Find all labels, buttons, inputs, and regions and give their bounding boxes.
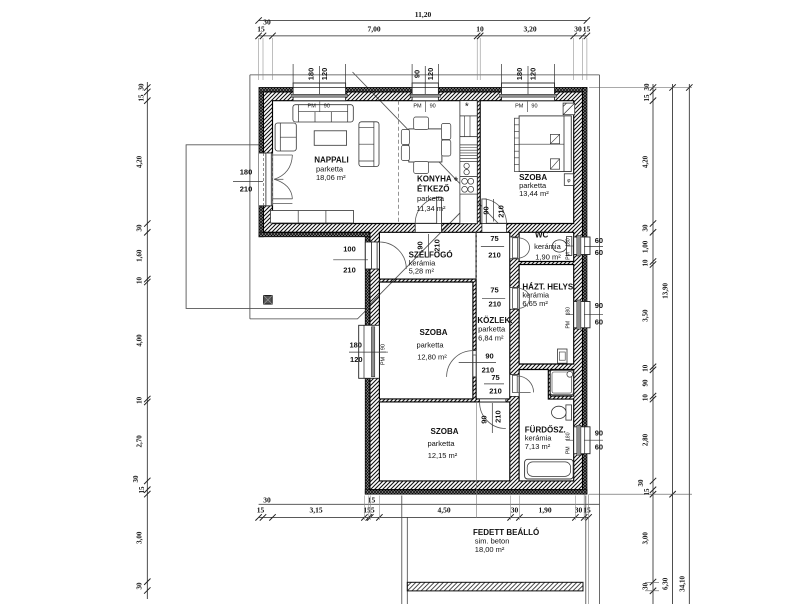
svg-text:kerámia: kerámia [534,242,562,251]
svg-text:90: 90 [412,70,421,78]
svg-text:30: 30 [642,224,650,232]
svg-text:30: 30 [574,25,582,34]
svg-text:210: 210 [433,239,442,252]
svg-text:30: 30 [263,496,271,505]
svg-text:10: 10 [642,394,650,402]
svg-text:ÉTKEZŐ: ÉTKEZŐ [417,185,449,194]
svg-text:12,80 m²: 12,80 m² [417,353,447,362]
svg-text:180: 180 [566,432,572,441]
svg-text:210: 210 [489,300,502,309]
svg-text:KONYHA +: KONYHA + [417,175,459,184]
svg-text:3,00: 3,00 [136,531,144,544]
svg-text:parketta: parketta [427,439,455,448]
svg-text:120: 120 [426,68,435,81]
svg-text:PM: PM [308,104,317,110]
svg-text:10: 10 [136,396,144,404]
svg-text:15: 15 [138,486,146,494]
svg-text:6,65 m²: 6,65 m² [522,299,548,308]
svg-text:90: 90 [324,104,330,110]
svg-text:120: 120 [529,68,538,81]
svg-text:NAPPALI: NAPPALI [314,156,349,165]
svg-text:10: 10 [642,259,650,267]
svg-text:210: 210 [343,266,356,275]
svg-text:2,70: 2,70 [136,435,144,448]
svg-text:75: 75 [490,234,498,243]
svg-text:60: 60 [595,236,603,245]
svg-text:15: 15 [138,94,146,102]
svg-text:15: 15 [643,94,651,102]
svg-text:SZOBA: SZOBA [431,427,459,436]
svg-text:30: 30 [637,479,645,487]
svg-text:5,28 m²: 5,28 m² [409,267,435,276]
svg-text:SZOBA: SZOBA [420,328,448,337]
svg-text:210: 210 [482,365,495,374]
svg-text:90: 90 [595,429,603,438]
svg-text:34,10: 34,10 [678,576,686,592]
svg-text:1,90 m²: 1,90 m² [535,253,561,262]
svg-text:90: 90 [430,104,436,110]
svg-text:10: 10 [476,25,484,34]
svg-text:4,20: 4,20 [136,155,144,168]
svg-text:30: 30 [642,582,650,590]
svg-text:180: 180 [240,168,253,177]
svg-text:90: 90 [416,241,425,249]
svg-text:2,80: 2,80 [642,433,650,446]
svg-text:6,30: 6,30 [662,577,670,590]
svg-text:155: 155 [363,506,375,515]
svg-text:60: 60 [595,318,603,327]
svg-text:30: 30 [132,475,140,483]
svg-text:90: 90 [595,301,603,310]
svg-text:3,00: 3,00 [642,532,650,545]
svg-text:210: 210 [497,205,506,218]
svg-text:PM: PM [381,356,387,365]
svg-text:PM: PM [566,252,572,260]
svg-text:PM: PM [566,321,572,329]
svg-text:13,44 m²: 13,44 m² [519,189,549,198]
svg-text:30: 30 [138,83,146,91]
svg-text:75: 75 [490,286,498,295]
svg-text:1,90: 1,90 [538,506,551,515]
svg-text:120: 120 [350,355,363,364]
svg-text:10: 10 [642,364,650,372]
svg-text:1,00: 1,00 [642,240,650,253]
svg-text:7,13 m²: 7,13 m² [525,442,551,451]
svg-text:7,00: 7,00 [367,25,380,34]
svg-text:1,60: 1,60 [136,249,144,262]
svg-text:WC: WC [535,231,549,240]
svg-text:180: 180 [566,307,572,316]
svg-text:30: 30 [136,224,144,232]
svg-text:15: 15 [257,506,265,515]
svg-text:60: 60 [595,248,603,257]
svg-text:90: 90 [531,104,537,110]
svg-text:PM: PM [413,104,422,110]
svg-text:90: 90 [482,206,491,214]
svg-text:180: 180 [566,238,572,247]
svg-text:PM: PM [566,446,572,454]
svg-text:4,00: 4,00 [136,334,144,347]
svg-text:*: * [465,102,469,113]
svg-text:18,06 m²: 18,06 m² [316,173,346,182]
svg-text:15: 15 [583,25,591,34]
svg-text:6,84 m²: 6,84 m² [478,334,504,343]
svg-text:3,15: 3,15 [309,506,322,515]
svg-text:4,20: 4,20 [642,155,650,168]
svg-text:parketta: parketta [478,325,506,334]
svg-text:13,90: 13,90 [662,283,670,299]
svg-text:3,50: 3,50 [642,309,650,322]
svg-text:parketta: parketta [416,341,444,350]
svg-text:parketta: parketta [417,194,445,203]
svg-text:11,20: 11,20 [415,10,432,19]
svg-text:180: 180 [515,68,524,81]
svg-text:120: 120 [320,68,329,81]
svg-text:15: 15 [257,25,265,34]
svg-text:PM: PM [515,104,524,110]
svg-text:90: 90 [485,351,493,360]
svg-text:90: 90 [479,415,488,423]
svg-text:90: 90 [381,344,387,350]
svg-text:210: 210 [489,387,502,396]
svg-text:30: 30 [136,582,144,590]
svg-text:210: 210 [240,185,253,194]
svg-text:30: 30 [575,506,583,515]
svg-text:60: 60 [595,443,603,452]
svg-text:4,50: 4,50 [437,506,450,515]
svg-text:180: 180 [349,340,362,349]
svg-text:180: 180 [306,68,315,81]
svg-text:18,00 m²: 18,00 m² [475,545,505,554]
svg-text:75: 75 [491,373,499,382]
svg-text:3,20: 3,20 [523,25,536,34]
svg-text:30: 30 [643,83,651,91]
svg-text:10: 10 [136,277,144,285]
svg-text:90: 90 [642,379,650,387]
svg-text:210: 210 [493,410,502,423]
svg-text:30: 30 [511,506,519,515]
svg-text:12,15 m²: 12,15 m² [428,451,458,460]
svg-text:100: 100 [343,245,356,254]
svg-text:210: 210 [488,251,501,260]
svg-text:11,34 m²: 11,34 m² [417,204,447,213]
